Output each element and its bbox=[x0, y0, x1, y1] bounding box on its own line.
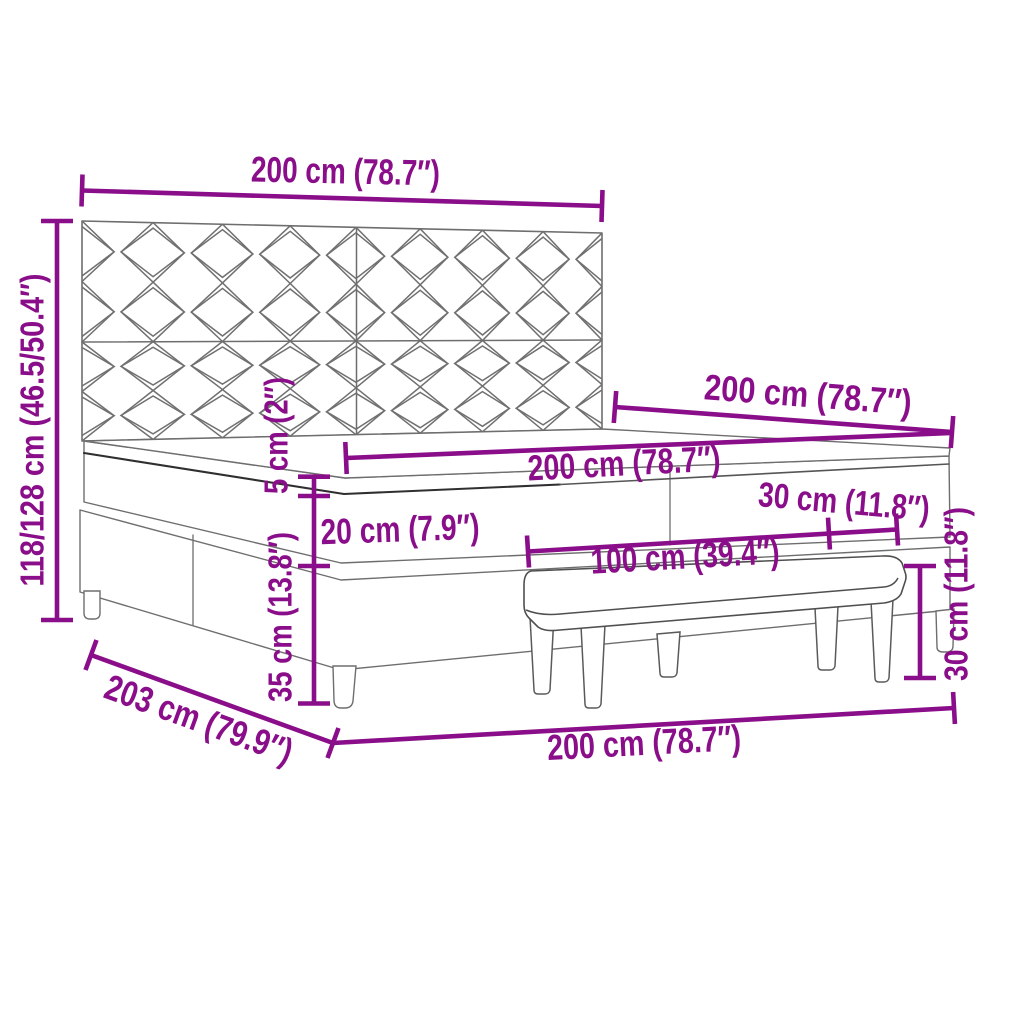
svg-text:118/128 cm (46.5/50.4″): 118/128 cm (46.5/50.4″) bbox=[14, 274, 51, 587]
svg-text:200 cm (78.7″): 200 cm (78.7″) bbox=[251, 149, 441, 194]
svg-text:30 cm (11.8″): 30 cm (11.8″) bbox=[938, 507, 975, 681]
svg-text:20 cm (7.9″): 20 cm (7.9″) bbox=[320, 506, 480, 553]
svg-text:35 cm (13.8″): 35 cm (13.8″) bbox=[262, 532, 299, 702]
svg-text:5 cm (2″): 5 cm (2″) bbox=[258, 377, 295, 494]
